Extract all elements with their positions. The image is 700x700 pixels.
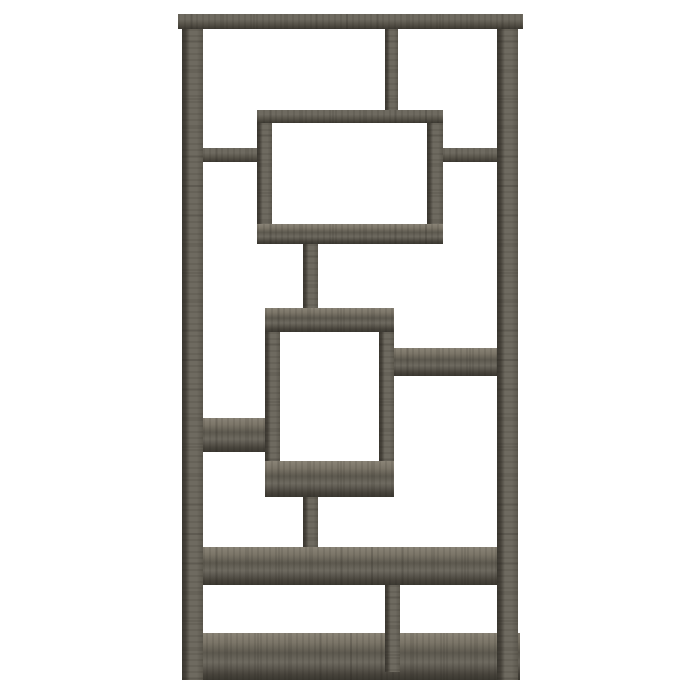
part-top-board bbox=[178, 14, 523, 29]
part-upper-box-bottom-shelf bbox=[257, 224, 443, 244]
part-upper-box-top-shelf bbox=[257, 110, 443, 123]
part-upper-box-right-wall bbox=[427, 123, 443, 224]
bookcase bbox=[0, 0, 700, 700]
part-lower-box-bottom-shelf bbox=[265, 461, 394, 497]
part-middle-right-shelf bbox=[394, 348, 497, 376]
part-lower-box-top-shelf bbox=[265, 308, 394, 332]
part-lower-box-right-wall bbox=[379, 332, 394, 461]
part-wide-lower-shelf bbox=[203, 547, 497, 585]
part-left-post bbox=[182, 29, 203, 680]
part-upper-right-shelf bbox=[443, 148, 497, 162]
part-right-post bbox=[497, 29, 518, 680]
part-upper-box-left-wall bbox=[257, 123, 272, 224]
part-bottom-divider bbox=[385, 585, 400, 672]
part-upper-center-stem bbox=[303, 244, 318, 308]
product-photo bbox=[0, 0, 700, 700]
part-bottom-board bbox=[182, 633, 520, 680]
part-lower-box-left-wall bbox=[265, 332, 280, 461]
part-upper-left-shelf bbox=[203, 148, 257, 162]
part-middle-left-shelf bbox=[203, 418, 265, 452]
part-top-divider bbox=[385, 29, 398, 110]
part-lower-center-stem bbox=[303, 497, 318, 547]
